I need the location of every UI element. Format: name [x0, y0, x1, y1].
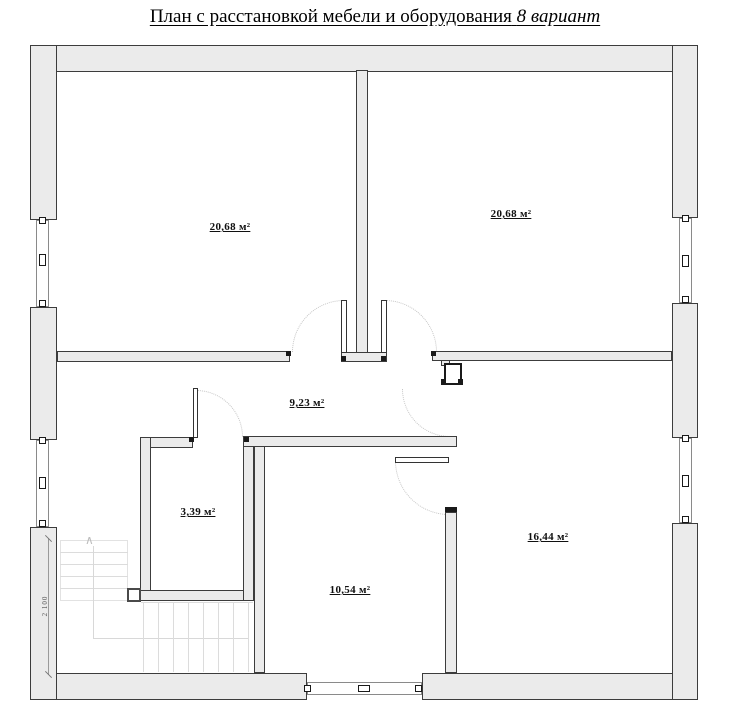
outer-wall-bottom-right [422, 673, 698, 700]
stair-tread-line [188, 602, 189, 672]
outer-wall-left-upper [30, 45, 57, 220]
outer-wall-right-middle [672, 303, 698, 438]
stair-tread-line [173, 602, 174, 672]
door-swing-arc [402, 389, 450, 437]
room-area-label-top-right: 20,68 м² [491, 208, 532, 220]
wall-bottomroom-top [243, 436, 457, 447]
outer-wall-bottom-left [30, 673, 307, 700]
door-jamb-mark [445, 507, 457, 512]
stairs-upper-flight [60, 540, 128, 601]
stair-tread-line [60, 552, 128, 553]
door-leaf-topright-room [381, 300, 387, 353]
window-frame-mark [682, 215, 689, 222]
door-jamb-mark [431, 351, 436, 356]
stairs-walk-line [93, 638, 248, 639]
plan-variant-text: 8 вариант [517, 6, 601, 27]
dimension-label: 2 100 [34, 591, 56, 621]
window-frame-mark [39, 520, 46, 527]
window-frame-mark [682, 435, 689, 442]
stairs-newel-post [127, 588, 141, 602]
stair-tread-line [60, 588, 128, 589]
stair-tread-line [143, 602, 144, 672]
outer-wall-right-lower [672, 523, 698, 700]
door-jamb-mark [381, 356, 386, 361]
window-frame-mark [682, 516, 689, 523]
wall-closet-left [140, 437, 151, 601]
window-frame-mark [39, 254, 46, 266]
stair-tread-line [158, 602, 159, 672]
door-swing-arc [385, 300, 437, 352]
door-swing-arc [395, 461, 449, 515]
stair-tread-line [60, 576, 128, 577]
room-area-label-hallway: 9,23 м² [290, 397, 325, 409]
window-frame-mark [39, 477, 46, 489]
stair-tread-line [233, 602, 234, 672]
floor-plan: План с расстановкой мебели и оборудовани… [0, 0, 750, 707]
outer-wall-left-middle [30, 307, 57, 440]
door-swing-arc [292, 300, 344, 352]
window-frame-mark [682, 255, 689, 267]
stairs-up-arrow-icon: ∧ [85, 533, 94, 547]
room-area-label-bottom: 10,54 м² [330, 584, 371, 596]
outer-wall-top [30, 45, 698, 72]
room-area-label-closet: 3,39 м² [181, 506, 216, 518]
window-frame-mark [39, 217, 46, 224]
page-title: План с расстановкой мебели и оборудовани… [0, 6, 750, 28]
door-leaf-bottomroom [395, 457, 449, 463]
door-jamb-mark [244, 437, 249, 442]
vent-corner-mark [441, 379, 446, 385]
window-frame-mark [358, 685, 370, 692]
stairs-walk-line [93, 546, 94, 638]
window-frame-mark [304, 685, 311, 692]
stair-tread-line [60, 564, 128, 565]
door-jamb-mark [341, 356, 346, 361]
window-frame-mark [682, 475, 689, 487]
door-jamb-mark [189, 437, 194, 442]
wall-topright-room-bottom [432, 351, 672, 361]
room-area-label-top-left: 20,68 м² [210, 221, 251, 233]
wall-closet-right [243, 437, 254, 601]
wall-bottomroom-left [254, 437, 265, 673]
stair-tread-line [218, 602, 219, 672]
window-frame-mark [39, 300, 46, 307]
room-area-label-right: 16,44 м² [528, 531, 569, 543]
wall-bottomroom-right [445, 512, 457, 673]
wall-topleft-room-bottom [57, 351, 290, 362]
vent-corner-mark [458, 379, 463, 385]
plan-title-text: План с расстановкой мебели и оборудовани… [150, 6, 512, 27]
window-frame-mark [39, 437, 46, 444]
stair-tread-line [248, 602, 249, 672]
window-frame-mark [415, 685, 422, 692]
stair-tread-line [203, 602, 204, 672]
outer-wall-right-upper [672, 45, 698, 218]
window-frame-mark [682, 296, 689, 303]
door-swing-arc [196, 390, 243, 437]
door-leaf-closet [193, 388, 198, 438]
door-leaf-topleft-room [341, 300, 347, 353]
door-jamb-mark [286, 351, 291, 356]
wall-center-stub [356, 70, 368, 353]
